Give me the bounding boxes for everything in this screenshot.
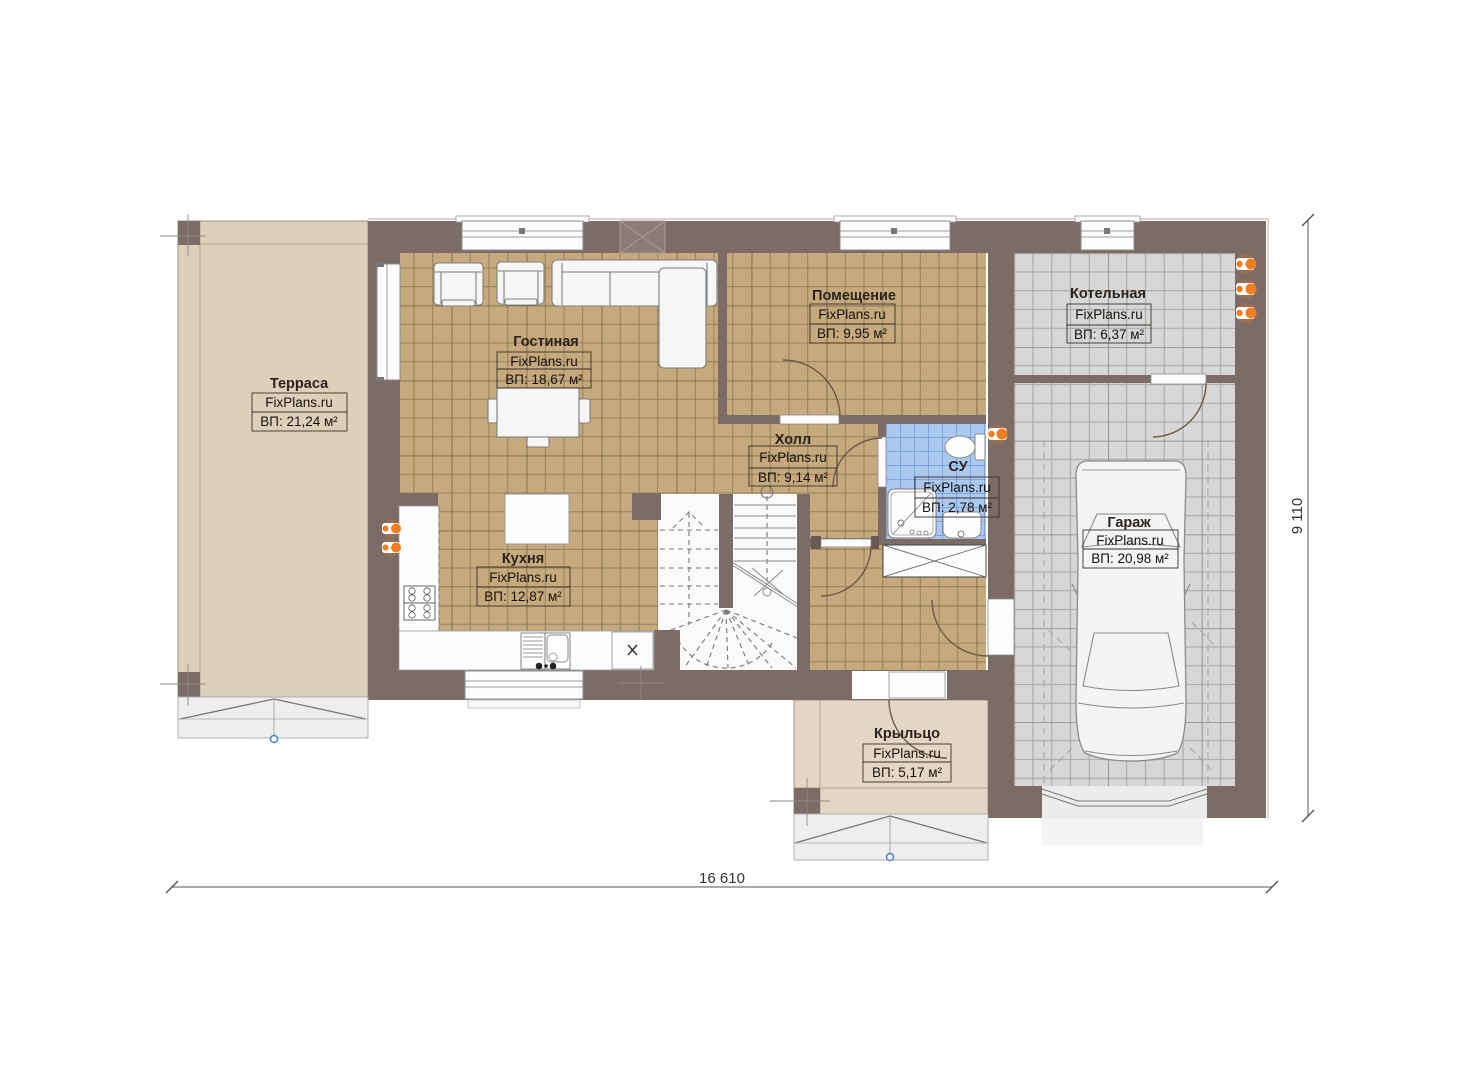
svg-text:ВП: 9,14 м²: ВП: 9,14 м² <box>758 470 829 485</box>
svg-text:СУ: СУ <box>948 459 968 475</box>
svg-text:FixPlans.ru: FixPlans.ru <box>265 395 333 410</box>
svg-text:Терраса: Терраса <box>270 376 329 392</box>
svg-text:ВП: 5,17 м²: ВП: 5,17 м² <box>872 765 943 780</box>
svg-text:ВП: 6,37 м²: ВП: 6,37 м² <box>1074 327 1145 342</box>
svg-text:Кухня: Кухня <box>502 551 544 567</box>
svg-text:FixPlans.ru: FixPlans.ru <box>759 450 827 465</box>
svg-text:Котельная: Котельная <box>1070 286 1146 302</box>
svg-text:FixPlans.ru: FixPlans.ru <box>818 307 886 322</box>
svg-text:FixPlans.ru: FixPlans.ru <box>510 354 578 369</box>
svg-text:FixPlans.ru: FixPlans.ru <box>489 570 557 585</box>
svg-text:FixPlans.ru: FixPlans.ru <box>923 480 991 495</box>
svg-text:Гостиная: Гостиная <box>513 334 579 350</box>
svg-text:FixPlans.ru: FixPlans.ru <box>873 746 941 761</box>
svg-text:FixPlans.ru: FixPlans.ru <box>1075 307 1143 322</box>
svg-text:9 110: 9 110 <box>1289 498 1306 534</box>
svg-text:Гараж: Гараж <box>1107 515 1151 531</box>
svg-text:ВП: 2,78 м²: ВП: 2,78 м² <box>922 500 993 515</box>
svg-text:16 610: 16 610 <box>699 870 745 887</box>
svg-text:ВП: 20,98 м²: ВП: 20,98 м² <box>1091 551 1169 566</box>
svg-text:ВП: 9,95 м²: ВП: 9,95 м² <box>817 326 888 341</box>
svg-text:FixPlans.ru: FixPlans.ru <box>1096 533 1164 548</box>
svg-text:ВП: 18,67 м²: ВП: 18,67 м² <box>505 372 583 387</box>
svg-text:Помещение: Помещение <box>812 288 896 304</box>
svg-text:Крыльцо: Крыльцо <box>874 726 940 742</box>
svg-text:ВП: 12,87 м²: ВП: 12,87 м² <box>484 589 562 604</box>
svg-text:ВП: 21,24 м²: ВП: 21,24 м² <box>260 414 338 429</box>
